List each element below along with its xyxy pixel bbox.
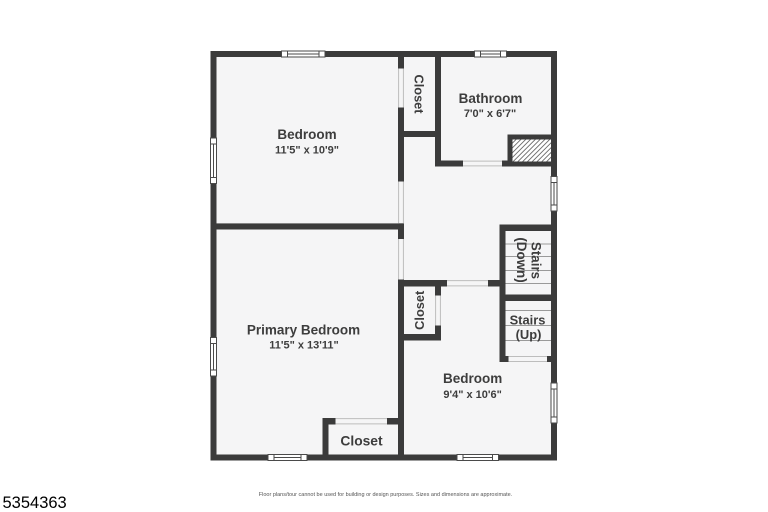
svg-text:7'0" x 6'7": 7'0" x 6'7" <box>464 108 516 120</box>
svg-text:Floor plans/tour cannot be use: Floor plans/tour cannot be used for buil… <box>259 492 513 498</box>
svg-text:9'4" x 10'6": 9'4" x 10'6" <box>443 389 501 401</box>
svg-text:Closet: Closet <box>340 433 383 448</box>
svg-text:5354363: 5354363 <box>3 494 67 512</box>
svg-text:Stairs: Stairs <box>510 312 546 327</box>
svg-text:11'5" x 13'11": 11'5" x 13'11" <box>269 340 339 352</box>
svg-text:Stairs: Stairs <box>528 242 543 279</box>
svg-text:(Down): (Down) <box>514 237 529 282</box>
svg-text:11'5" x 10'9": 11'5" x 10'9" <box>275 145 339 157</box>
svg-text:Closet: Closet <box>412 74 427 114</box>
svg-text:Bedroom: Bedroom <box>443 371 502 386</box>
svg-text:(Up): (Up) <box>516 327 542 342</box>
svg-text:Primary Bedroom: Primary Bedroom <box>247 323 360 338</box>
svg-text:Closet: Closet <box>412 290 427 330</box>
svg-text:Bathroom: Bathroom <box>459 91 523 106</box>
svg-text:Bedroom: Bedroom <box>277 127 336 142</box>
